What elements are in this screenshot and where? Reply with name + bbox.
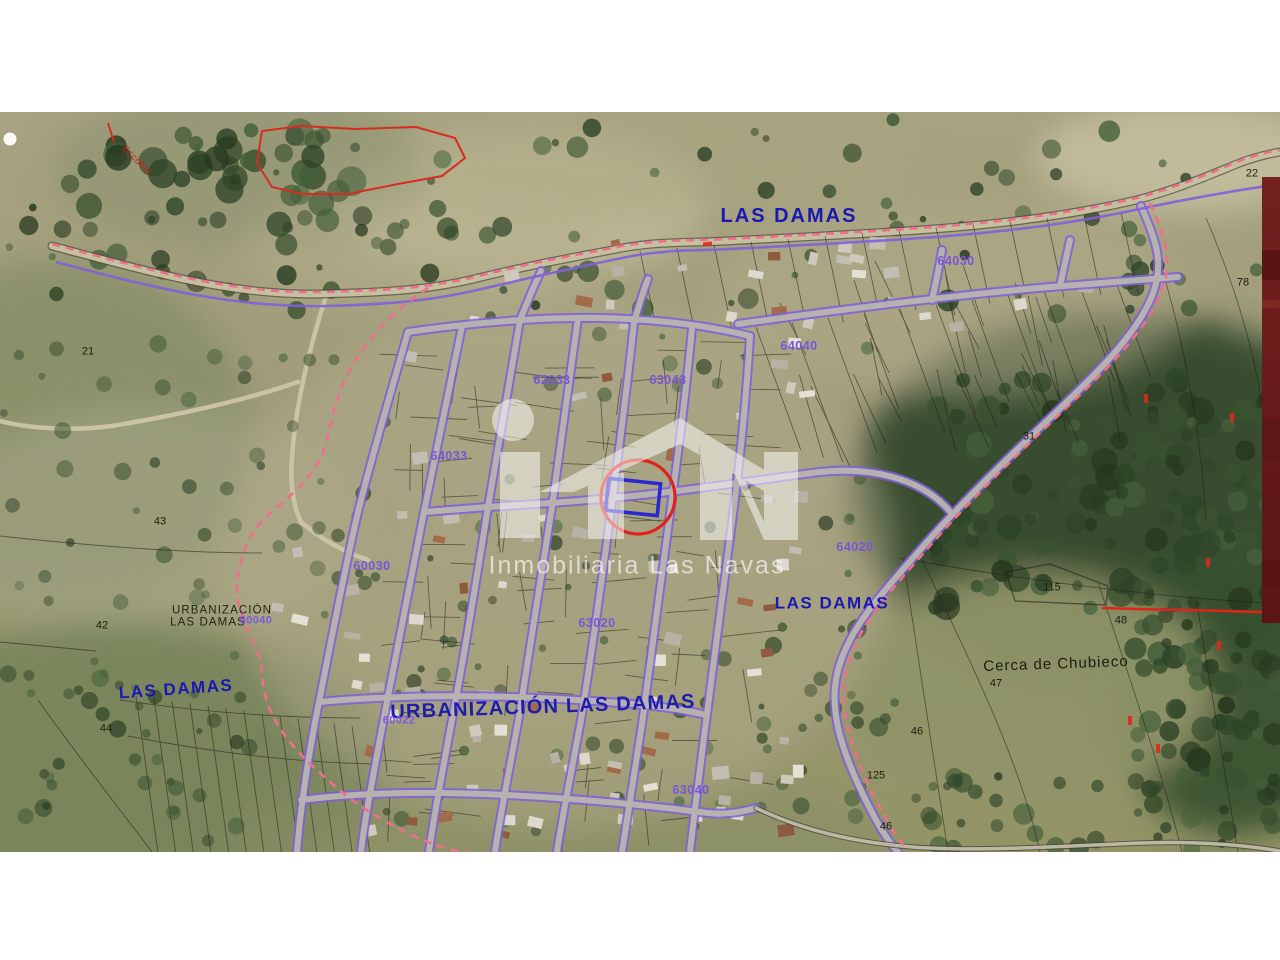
map-canvas[interactable]: LAS DAMAS6403064040620336304364033600306… <box>0 0 1280 960</box>
right-margin-maroon-bar <box>1262 177 1280 623</box>
white-dot-marker <box>4 133 17 146</box>
cadastral-map-screenshot: LAS DAMAS6403064040620336304364033600306… <box>0 0 1280 960</box>
satellite-basemap <box>0 0 1280 960</box>
